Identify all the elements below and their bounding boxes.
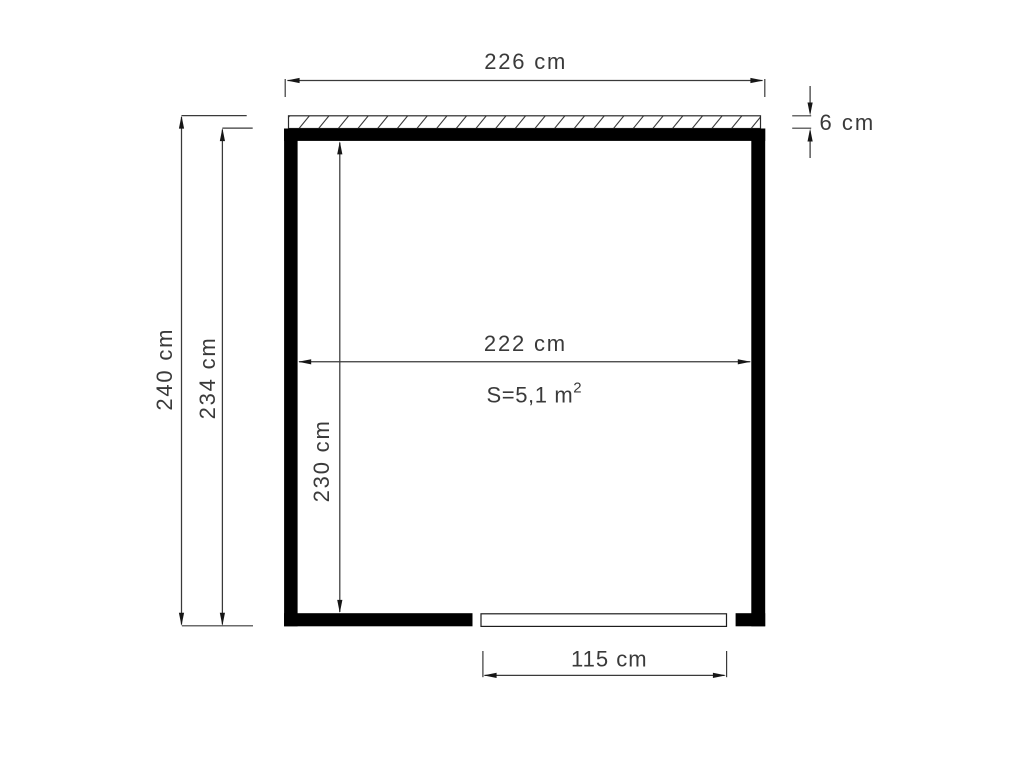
svg-text:S=5,1 m2: S=5,1 m2 xyxy=(487,380,583,408)
svg-text:234 cm: 234 cm xyxy=(195,336,220,419)
svg-text:6 cm: 6 cm xyxy=(820,110,876,135)
svg-text:240 cm: 240 cm xyxy=(152,328,177,411)
svg-text:226 cm: 226 cm xyxy=(484,49,567,74)
svg-text:115 cm: 115 cm xyxy=(571,647,648,672)
svg-text:230 cm: 230 cm xyxy=(309,419,334,502)
svg-text:222 cm: 222 cm xyxy=(484,331,567,356)
